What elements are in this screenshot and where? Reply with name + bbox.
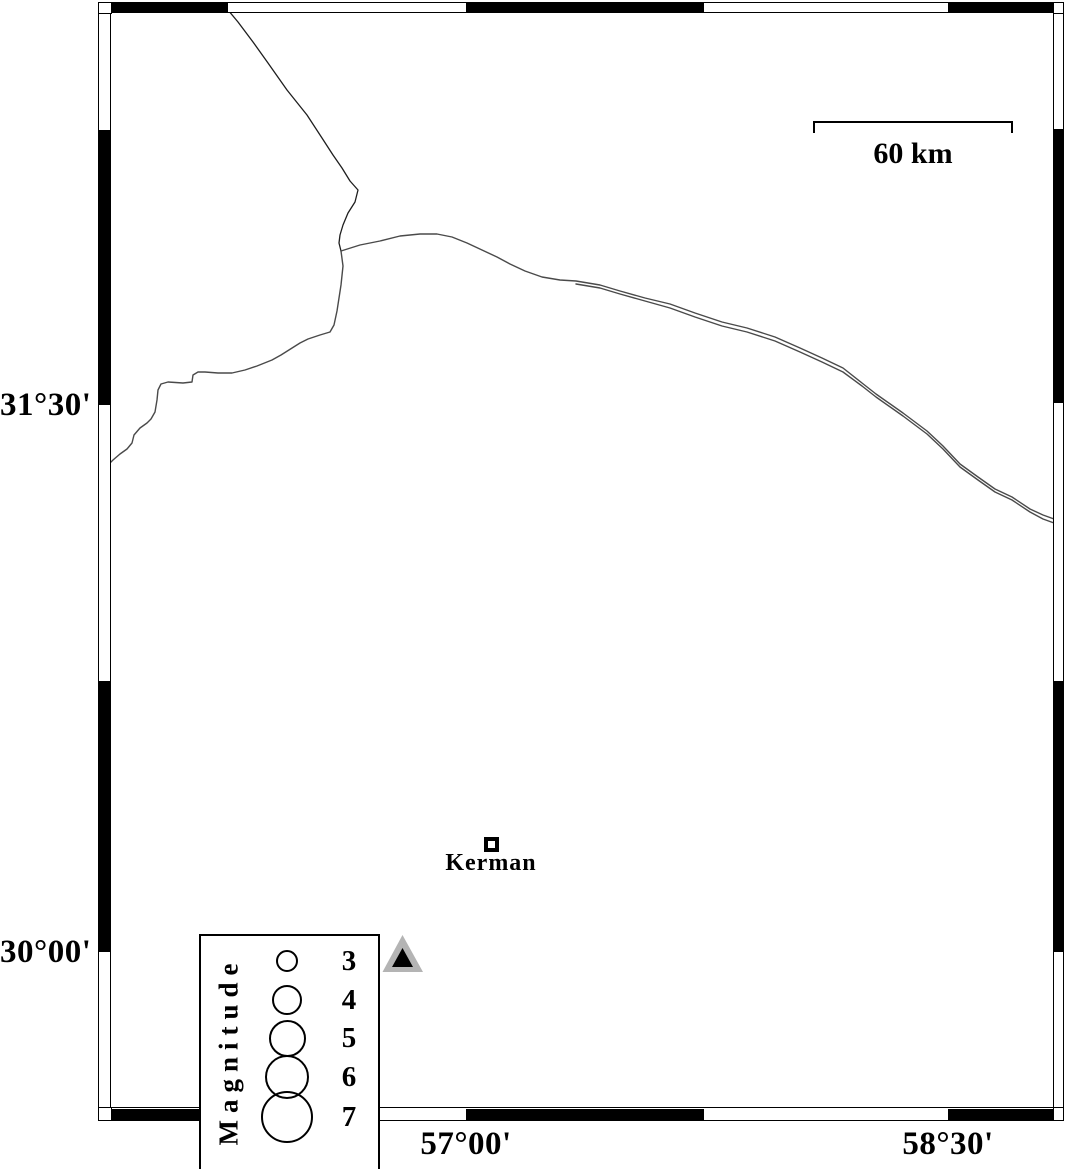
map-lines-layer	[0, 0, 1066, 1169]
frame-corner	[1053, 1107, 1065, 1121]
scale-bar	[813, 121, 1013, 123]
station-triangle-icon	[380, 932, 426, 974]
legend-value: 7	[328, 1099, 370, 1135]
city-label-kerman: Kerman	[391, 850, 591, 876]
frame-tick-segment	[948, 1109, 1054, 1120]
legend-circle-mag-3	[276, 950, 298, 972]
lon-label-57-00: 57°00'	[386, 1124, 546, 1164]
frame-tick-segment	[948, 3, 1054, 12]
legend-value: 5	[328, 1020, 370, 1056]
seismicity-map: 31°30' 30°00' 57°00' 58°30' 60 km Kerman…	[0, 0, 1066, 1169]
legend-value: 4	[328, 982, 370, 1018]
frame-tick-segment	[99, 681, 110, 952]
frame-tick-segment	[1054, 129, 1064, 403]
scale-bar-end-tick	[1011, 121, 1013, 133]
frame-tick-segment	[466, 1109, 704, 1120]
frame-tick-segment	[99, 130, 110, 405]
legend-box: Magnitude 3 4 5 6 7	[199, 934, 380, 1169]
map-line-southwest	[110, 251, 343, 463]
frame-tick-segment	[466, 3, 704, 12]
frame-corner	[98, 2, 112, 14]
lat-label-30-00: 30°00'	[0, 932, 86, 972]
legend-circle-mag-7	[261, 1091, 313, 1143]
frame-tick-segment	[1054, 681, 1064, 952]
legend-value: 6	[328, 1059, 370, 1095]
frame-tick-segment	[110, 3, 228, 12]
legend-circle-mag-5	[269, 1020, 306, 1057]
legend-value: 3	[328, 943, 370, 979]
lat-label-31-30: 31°30'	[0, 385, 86, 425]
scale-bar-end-tick	[813, 121, 815, 133]
map-line-east-lower	[576, 284, 1054, 523]
legend-title: Magnitude	[216, 956, 243, 1145]
frame-corner	[1053, 2, 1065, 14]
frame-corner	[98, 1107, 112, 1121]
legend-circle-mag-4	[272, 985, 302, 1015]
lon-label-58-30: 58°30'	[868, 1124, 1028, 1164]
map-line-north	[228, 10, 358, 251]
scale-bar-label: 60 km	[823, 137, 1003, 171]
map-line-east-upper	[341, 234, 1054, 519]
